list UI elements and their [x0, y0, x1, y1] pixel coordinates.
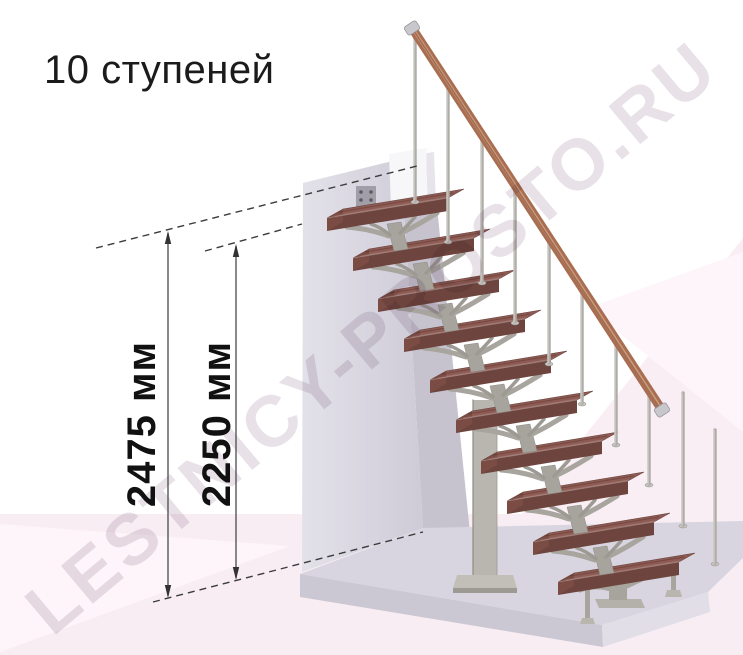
- top-step-level-dashed-line: [205, 224, 302, 251]
- page-title: 10 ступеней: [44, 48, 274, 93]
- dimension-label-total-height: 2475 мм: [120, 341, 164, 507]
- arrow-up-icon: [233, 244, 239, 257]
- arrow-up-icon: [165, 231, 171, 244]
- dimension-total-height: 2475 мм: [120, 231, 171, 598]
- upper-level-dashed-line: [96, 166, 417, 248]
- dimension-height-to-top-step: 2250 мм: [195, 244, 239, 580]
- dimension-label-height-to-top-step: 2250 мм: [195, 341, 239, 507]
- arrow-down-icon: [165, 585, 171, 598]
- floor-level-dashed-line: [153, 532, 423, 602]
- arrow-down-icon: [233, 567, 239, 580]
- dimension-annotations: 2475 мм 2250 мм: [0, 0, 743, 655]
- diagram-canvas: LESTNICY-PROSTO.RU 2475 мм 2250 мм 10 ст…: [0, 0, 743, 655]
